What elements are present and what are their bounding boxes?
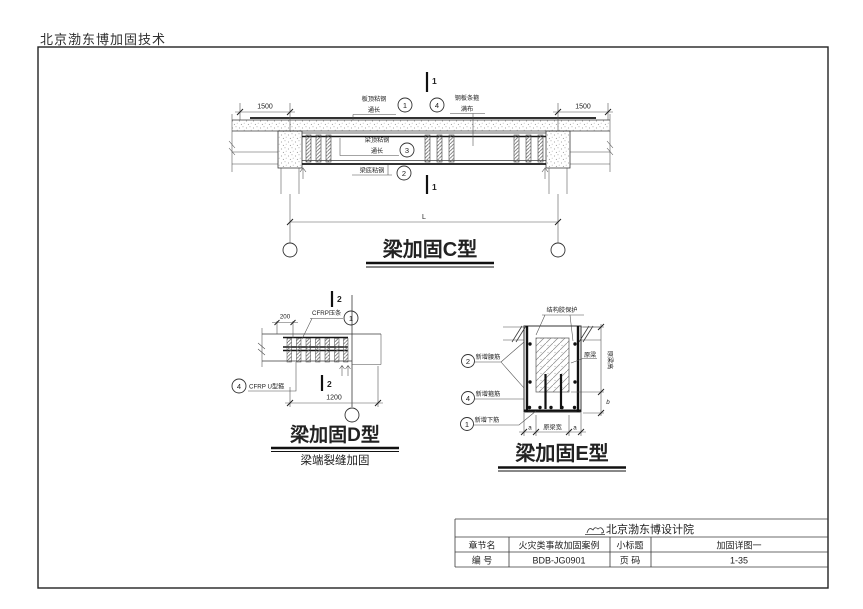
- d-section-mark-bottom: 2: [322, 375, 332, 391]
- d-section-mark-top: 2: [332, 291, 342, 307]
- d-callout-4: 4 CFRP U型箍: [232, 362, 296, 393]
- tb-row1-label1: 章节名: [468, 540, 495, 551]
- drawing-sheet: 北京渤东博加固技术: [0, 0, 863, 609]
- e-dim-a-right: a: [573, 425, 577, 432]
- drawing-c: 1 1 1500 1500: [229, 72, 613, 267]
- d-title-group: 梁加固D型 梁端裂缝加固: [271, 423, 399, 467]
- c-callout-3-line1: 梁顶粘钢: [365, 136, 390, 144]
- svg-text:原梁: 原梁: [584, 351, 596, 359]
- d-axis-bubble: [345, 408, 359, 422]
- tb-row1-label2: 小标题: [616, 540, 643, 551]
- tb-row1-value1: 火灾类事故加固案例: [518, 540, 599, 551]
- d-anchor-marks: [340, 366, 351, 377]
- c-callout-2-line1: 梁底粘钢: [360, 167, 385, 175]
- svg-text:4: 4: [237, 382, 241, 391]
- e-dim-a-left: a: [528, 425, 532, 432]
- e-callout-top-text: 结构胶保护: [547, 306, 578, 314]
- svg-text:4: 4: [435, 101, 439, 110]
- svg-text:1: 1: [465, 420, 469, 429]
- c-section-mark-bottom: 1: [427, 175, 437, 194]
- c-anchor-marks: [300, 168, 548, 179]
- tb-row2-value1: BDB-JG0901: [532, 556, 585, 566]
- e-label-original-beam: 原梁: [571, 351, 597, 363]
- svg-text:2: 2: [466, 357, 470, 366]
- c-section-label-bottom: 1: [432, 182, 437, 192]
- svg-text:1: 1: [349, 314, 353, 323]
- e-callout-1: 1 新增下筋: [461, 411, 537, 431]
- c-axis-bubble-right: [551, 243, 565, 257]
- tb-row2-value2: 1-35: [730, 556, 748, 566]
- d-callout-1: CFRP压条 1: [302, 309, 358, 339]
- e-dim-width-label: 原梁宽: [543, 424, 562, 432]
- e-callout-4: 4 新增箍筋: [462, 390, 525, 405]
- d-callout-4-text: CFRP U型箍: [249, 383, 284, 391]
- e-callout-2-text: 新增腰筋: [476, 353, 501, 361]
- svg-text:1500: 1500: [575, 104, 591, 111]
- c-callout-4-line1: 钢板条箍: [455, 94, 480, 102]
- tb-row1-value2: 加固详图一: [716, 540, 761, 551]
- design-institute-logo: [585, 528, 605, 535]
- cad-canvas: 1 1 1500 1500: [0, 0, 863, 609]
- d-subtitle: 梁端裂缝加固: [301, 453, 370, 467]
- e-callout-4-text: 新增箍筋: [476, 390, 501, 398]
- svg-text:200: 200: [280, 314, 291, 321]
- c-title: 梁加固C型: [382, 237, 477, 261]
- d-callout-1-text: CFRP压条: [312, 309, 341, 317]
- svg-text:3: 3: [405, 146, 409, 155]
- e-title: 梁加固E型: [514, 441, 608, 465]
- svg-text:4: 4: [466, 394, 470, 403]
- e-dim-added-height-label: b: [606, 399, 610, 406]
- d-section-label-bottom: 2: [327, 379, 332, 389]
- c-callout-1-line1: 板顶粘钢: [362, 95, 387, 103]
- tb-row2-label2: 页 码: [620, 556, 641, 566]
- d-break-left: [258, 343, 265, 355]
- e-callout-1-text: 新增下筋: [475, 416, 500, 424]
- svg-text:1200: 1200: [326, 395, 342, 402]
- c-callout-2: 梁底粘钢 2: [352, 165, 411, 180]
- c-callout-1-line2: 通长: [368, 106, 380, 114]
- svg-text:1500: 1500: [257, 104, 273, 111]
- svg-text:L: L: [422, 214, 426, 221]
- svg-text:2: 2: [402, 169, 406, 178]
- c-callout-1: 板顶粘钢 通长 1: [353, 95, 412, 120]
- c-section-label-top: 1: [432, 76, 437, 86]
- d-section-label-top: 2: [337, 294, 342, 304]
- e-callout-2: 2 新增腰筋: [462, 342, 525, 388]
- c-callout-4-line2: 满布: [461, 105, 473, 113]
- title-block-institute: 北京渤东博设计院: [606, 522, 694, 536]
- d-dim-1200: 1200: [285, 366, 383, 407]
- c-title-group: 梁加固C型: [366, 237, 494, 267]
- c-callout-3-line2: 通长: [371, 147, 383, 155]
- e-dim-height-label: 原梁高: [606, 351, 614, 370]
- d-title: 梁加固D型: [289, 423, 380, 446]
- c-axis-bubble-left: [283, 243, 297, 257]
- c-section-mark-top: 1: [427, 72, 437, 92]
- e-title-group: 梁加固E型: [498, 441, 626, 471]
- c-callout-3: 梁顶粘钢 通长 3: [340, 136, 414, 157]
- tb-row2-label1: 编 号: [472, 555, 493, 566]
- drawing-d: 2 2: [232, 291, 399, 467]
- title-block: 北京渤东博设计院 章节名 火灾类事故加固案例 小标题 加固详图一 编 号 BDB…: [455, 519, 828, 567]
- drawing-e: 结构胶保护 2 新增腰筋 4 新增箍筋 1 新增下筋: [461, 306, 627, 471]
- e-original-beam-core: [536, 338, 569, 392]
- svg-text:1: 1: [403, 101, 407, 110]
- c-steel-hoop-strips: [306, 135, 543, 162]
